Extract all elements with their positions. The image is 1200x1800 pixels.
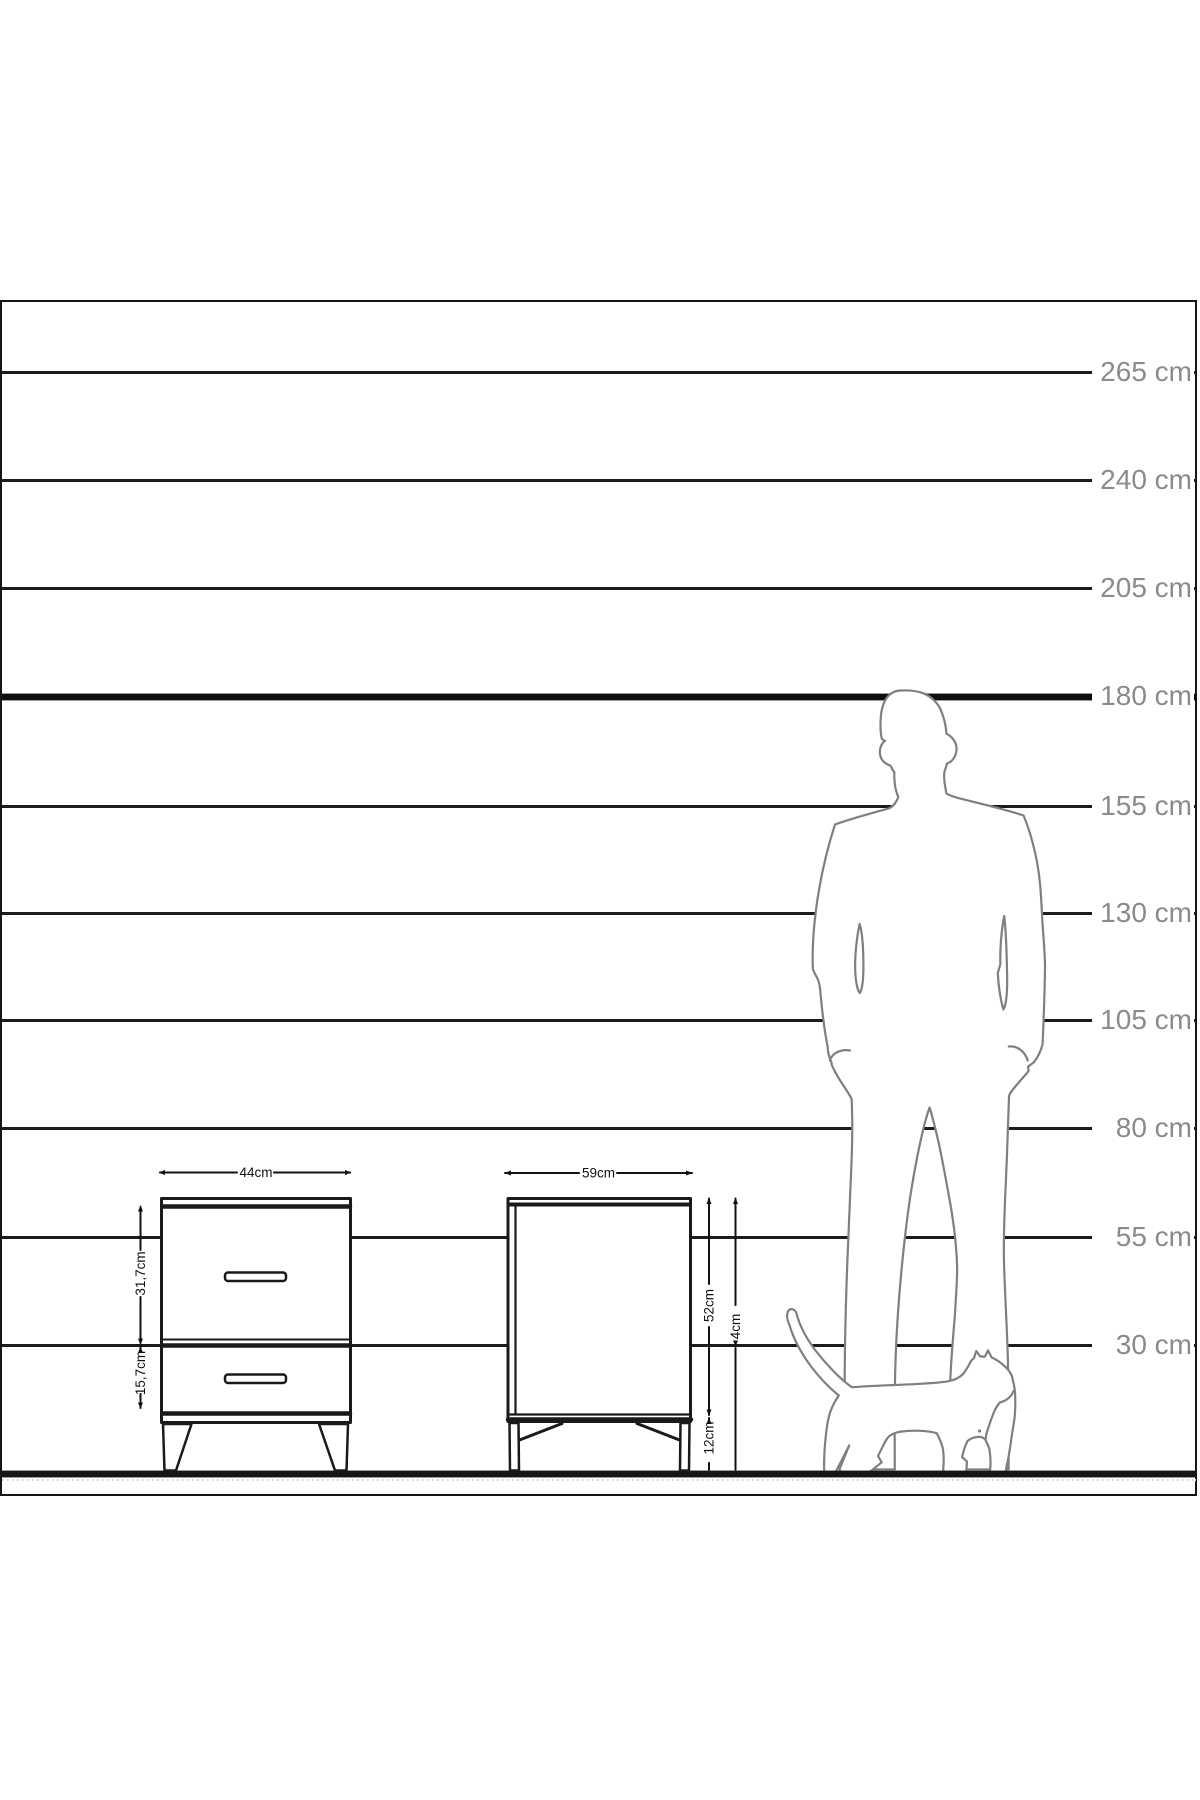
svg-text:15,7cm: 15,7cm xyxy=(133,1351,148,1395)
svg-text:12cm: 12cm xyxy=(702,1421,717,1454)
svg-text:44cm: 44cm xyxy=(239,1165,272,1180)
svg-text:52cm: 52cm xyxy=(702,1289,717,1322)
svg-text:31,7cm: 31,7cm xyxy=(133,1251,148,1295)
svg-text:4cm: 4cm xyxy=(728,1314,743,1340)
svg-text:59cm: 59cm xyxy=(582,1166,615,1181)
